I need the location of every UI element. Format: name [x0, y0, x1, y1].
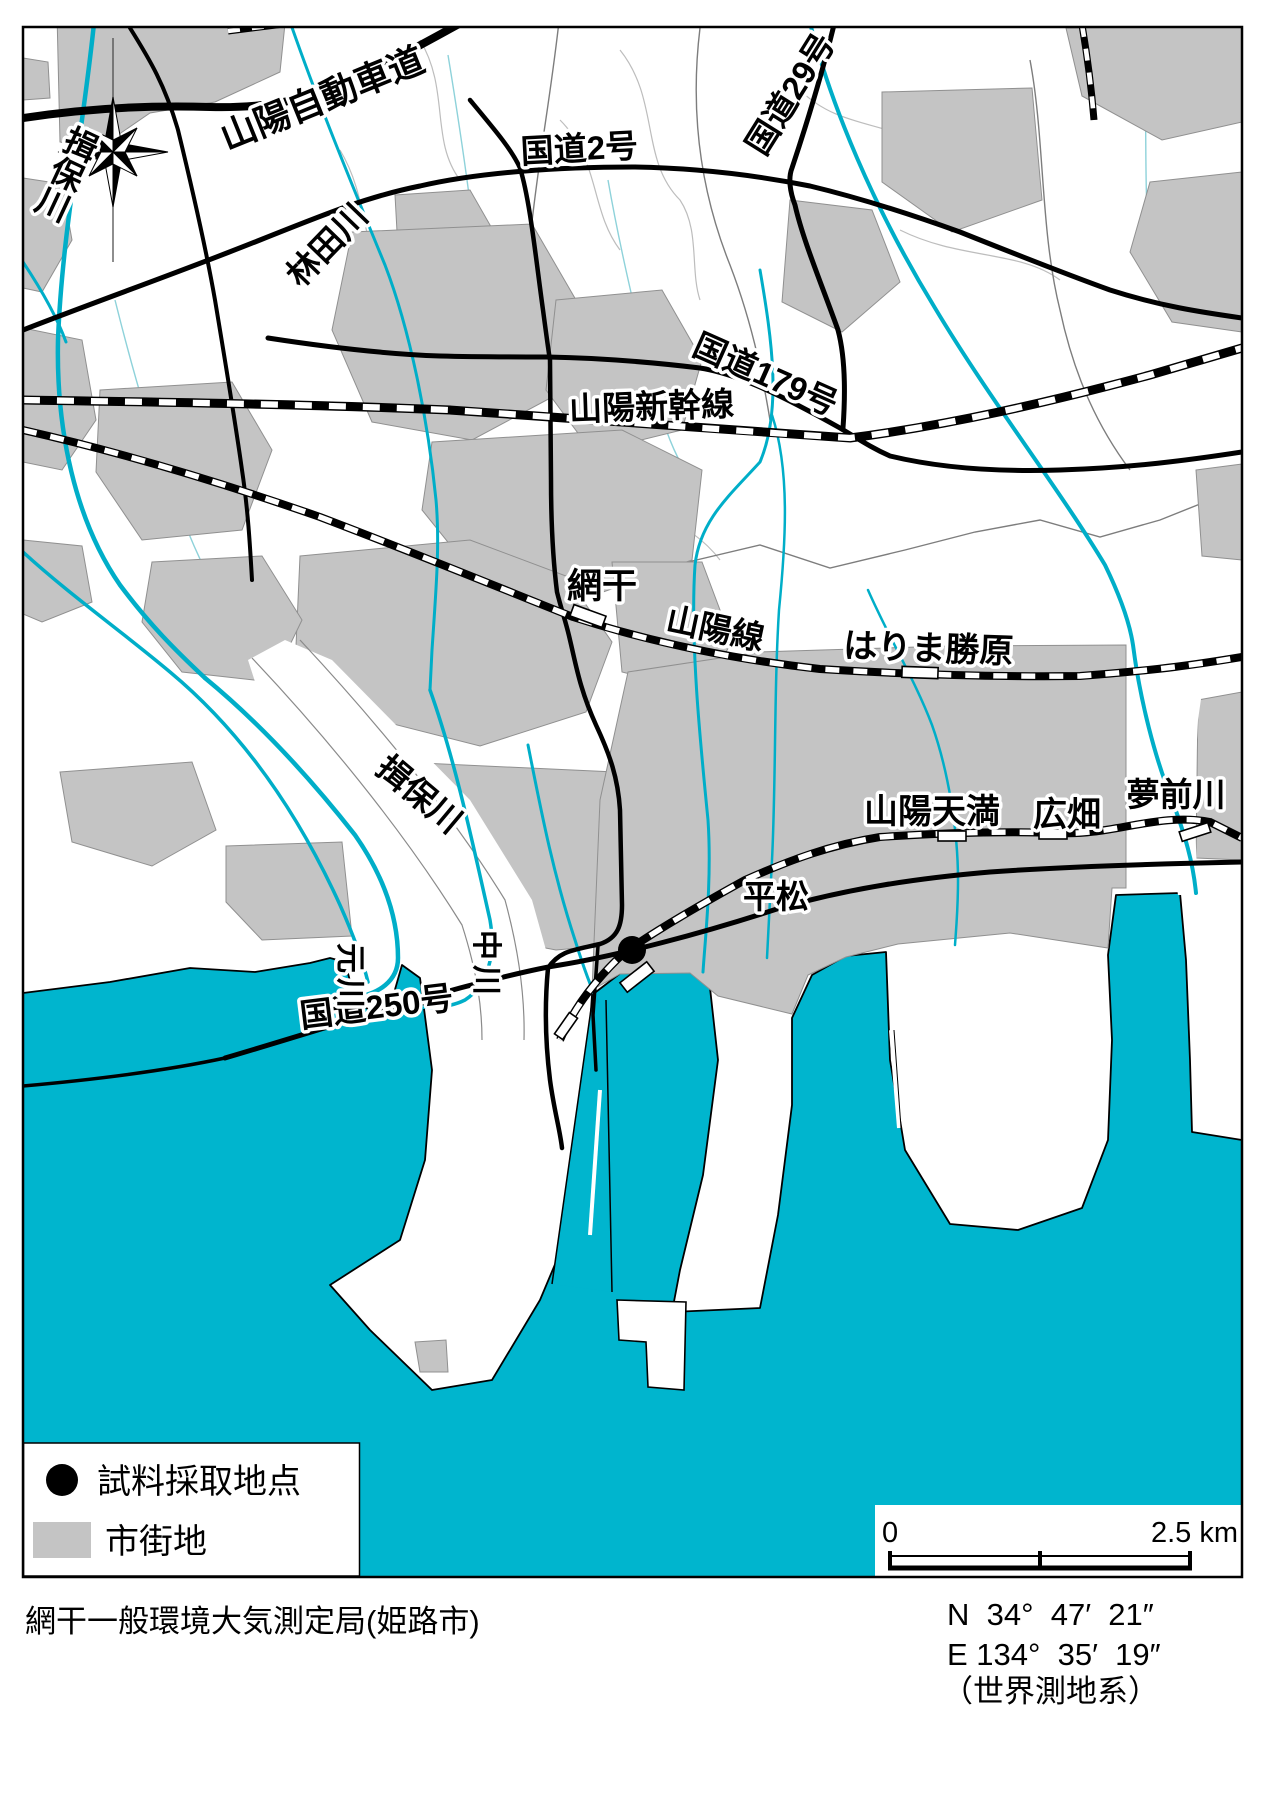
- longitude-text: E 134° 35′ 19″: [947, 1637, 1161, 1672]
- legend-sample-point-icon: [46, 1464, 78, 1496]
- label-shinkansen: 山陽新幹線: [569, 385, 735, 428]
- map-page: 山陽自動車道 国道2号 国道29号 国道179号 山陽新幹線 網干 山陽線 はり…: [0, 0, 1265, 1789]
- scale-bar: 0 2.5 km: [875, 1505, 1242, 1577]
- label-moto-river-2: 川: [333, 978, 366, 1008]
- label-hiramatsu: 平松: [743, 878, 809, 915]
- label-route29: 国道29号: [739, 27, 842, 162]
- latitude-text: N 34° 47′ 21″: [947, 1597, 1154, 1632]
- legend-urban-swatch: [33, 1522, 91, 1558]
- sample-point-marker: [618, 936, 646, 964]
- label-route2: 国道2号: [520, 127, 639, 170]
- station-box-sanyo-tenma: [938, 831, 966, 841]
- label-moto-river-1: 元: [333, 943, 366, 973]
- legend-urban-label: 市街地: [105, 1523, 207, 1561]
- label-hirohata: 広畑: [1033, 796, 1101, 834]
- label-naka-river-2: 川: [469, 965, 502, 995]
- scale-start-label: 0: [882, 1517, 898, 1549]
- label-harima-katsuhara: はりま勝原: [843, 627, 1014, 671]
- page-title: 網干一般環境大気測定局(姫路市): [25, 1604, 480, 1639]
- label-naka-river-1: 中: [469, 930, 502, 960]
- station-box-harima-katsuhara: [902, 666, 938, 678]
- monitoring-station-map: 山陽自動車道 国道2号 国道29号 国道179号 山陽新幹線 網干 山陽線 はり…: [0, 0, 1265, 1789]
- label-yumesaki-river: 夢前川: [1127, 776, 1226, 813]
- legend-sample-point-label: 試料採取地点: [97, 1463, 301, 1501]
- label-aboshi: 網干: [567, 567, 637, 606]
- scale-end-label: 2.5 km: [1151, 1517, 1238, 1549]
- datum-text: （世界測地系）: [942, 1674, 1159, 1709]
- label-sanyo-tenma: 山陽天満: [864, 793, 1000, 831]
- legend: 試料採取地点 市街地: [24, 1443, 360, 1576]
